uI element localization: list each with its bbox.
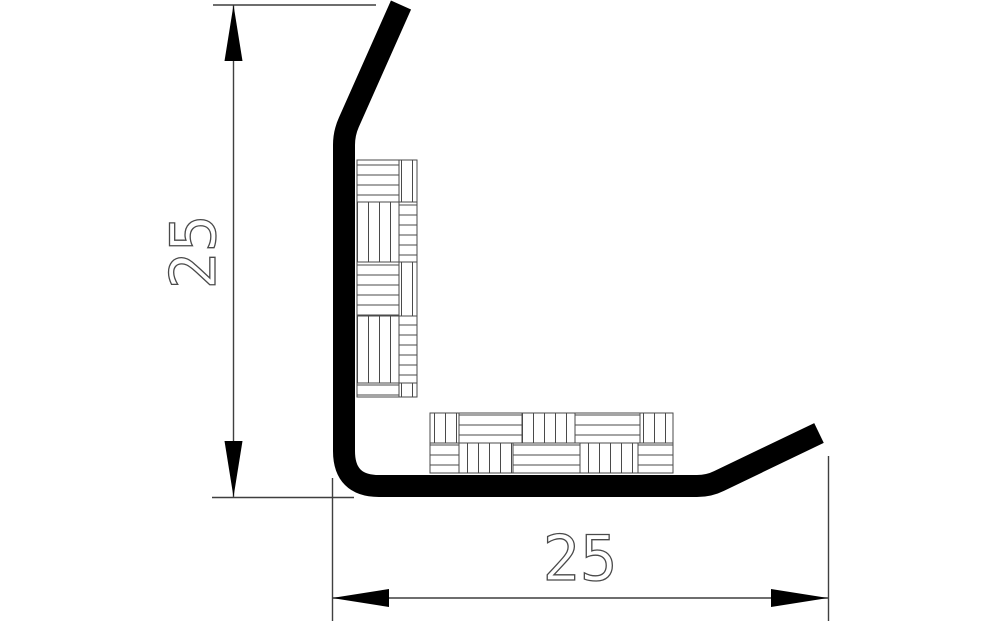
arrowhead-left-icon	[332, 589, 389, 607]
hatch-block	[522, 413, 575, 443]
hatch-block	[399, 316, 417, 383]
arrowhead-right-icon	[771, 589, 828, 607]
hatch-block	[357, 160, 399, 202]
horizontal-leg-hatch-pad	[430, 413, 673, 473]
drawing-canvas: 25 25	[0, 0, 1000, 622]
hatch-block	[357, 383, 399, 397]
hatch-block	[399, 160, 417, 202]
hatch-block	[399, 202, 417, 262]
width-dimension-label: 25	[543, 522, 618, 595]
technical-drawing: 25 25	[0, 0, 1000, 622]
hatch-block	[357, 262, 399, 316]
hatch-block	[357, 202, 399, 262]
hatch-block	[430, 443, 459, 473]
arrowhead-down-icon	[225, 441, 243, 497]
hatch-block	[430, 413, 459, 443]
hatch-block	[575, 413, 640, 443]
height-dimension-label: 25	[157, 215, 230, 290]
arrowhead-up-icon	[225, 5, 243, 61]
hatch-block	[357, 316, 399, 383]
hatch-block	[638, 443, 673, 473]
hatch-block	[399, 383, 417, 397]
hatch-block	[513, 443, 580, 473]
vertical-leg-hatch-pad	[357, 160, 417, 397]
hatch-block	[580, 443, 638, 473]
hatch-block	[640, 413, 673, 443]
hatch-block	[399, 262, 417, 316]
hatch-block	[459, 413, 522, 443]
hatch-block	[459, 443, 513, 473]
